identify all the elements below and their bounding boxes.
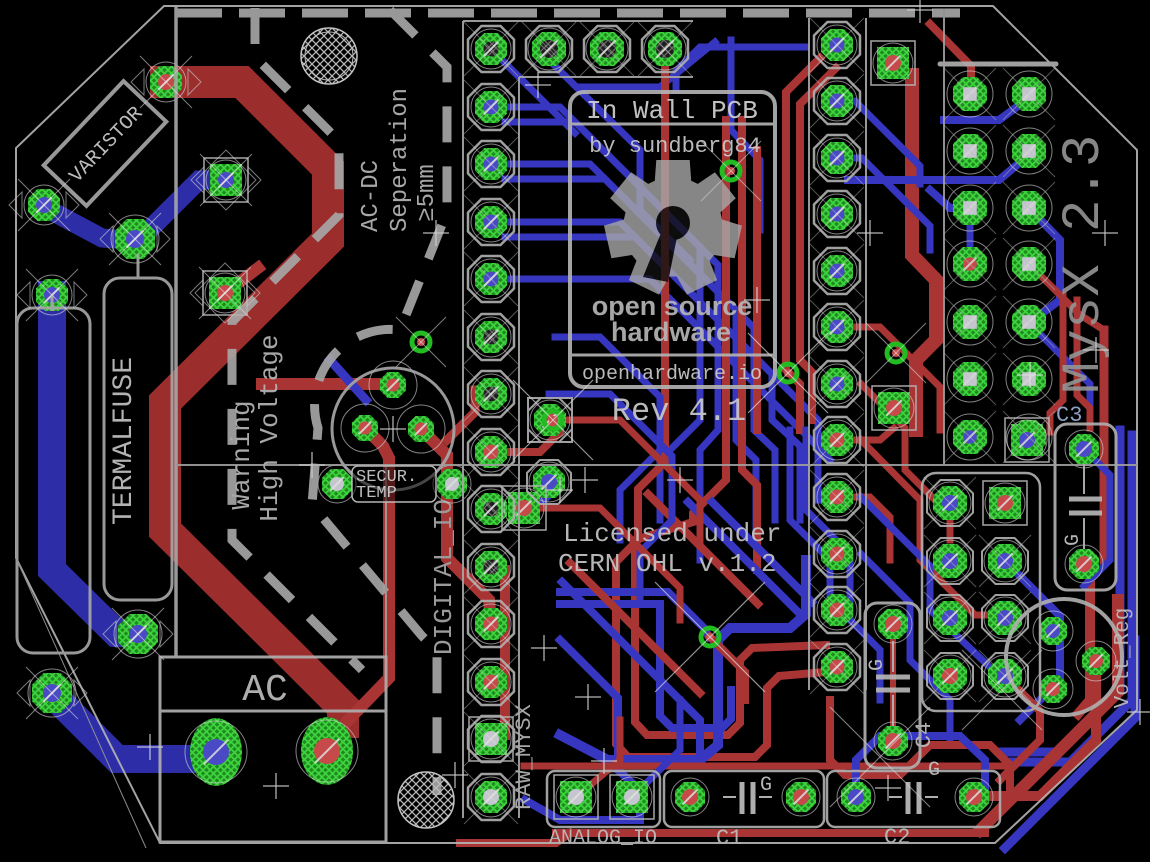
svg-text:G: G <box>760 774 772 797</box>
svg-text:≥5mm: ≥5mm <box>414 164 441 222</box>
svg-text:hardware: hardware <box>611 317 731 347</box>
svg-text:TERMALFUSE: TERMALFUSE <box>109 357 140 525</box>
svg-text:Licensed under: Licensed under <box>563 519 781 549</box>
svg-text:TEMP: TEMP <box>356 484 397 503</box>
svg-text:DIGITAL_IO: DIGITAL_IO <box>429 499 459 655</box>
svg-text:openhardware.io: openhardware.io <box>582 363 762 386</box>
svg-text:Rev 4.1: Rev 4.1 <box>612 393 746 430</box>
svg-text:C3: C3 <box>1056 403 1082 428</box>
svg-text:G: G <box>928 759 940 782</box>
svg-text:In Wall PCB: In Wall PCB <box>586 96 758 126</box>
svg-text:AC-DC: AC-DC <box>358 160 385 232</box>
svg-text:CERN OHL v.1.2: CERN OHL v.1.2 <box>558 549 776 579</box>
svg-text:AC: AC <box>242 669 288 712</box>
svg-text:MysX 2.3: MysX 2.3 <box>1054 135 1115 394</box>
svg-text:Seperation: Seperation <box>387 88 414 232</box>
svg-text:Volt_Reg: Volt_Reg <box>1112 608 1135 709</box>
svg-text:High Voltage: High Voltage <box>255 334 285 521</box>
svg-text:by sundberg84: by sundberg84 <box>589 134 761 159</box>
svg-text:ANALOG_IO: ANALOG_IO <box>549 827 657 850</box>
svg-text:G: G <box>1062 534 1085 546</box>
svg-text:C4: C4 <box>912 722 937 748</box>
svg-text:RAW_MYSX: RAW_MYSX <box>512 704 537 810</box>
svg-text:C2: C2 <box>884 825 910 850</box>
svg-text:C1: C1 <box>716 826 742 851</box>
svg-text:G: G <box>866 659 889 671</box>
svg-text:Warning: Warning <box>227 400 257 509</box>
